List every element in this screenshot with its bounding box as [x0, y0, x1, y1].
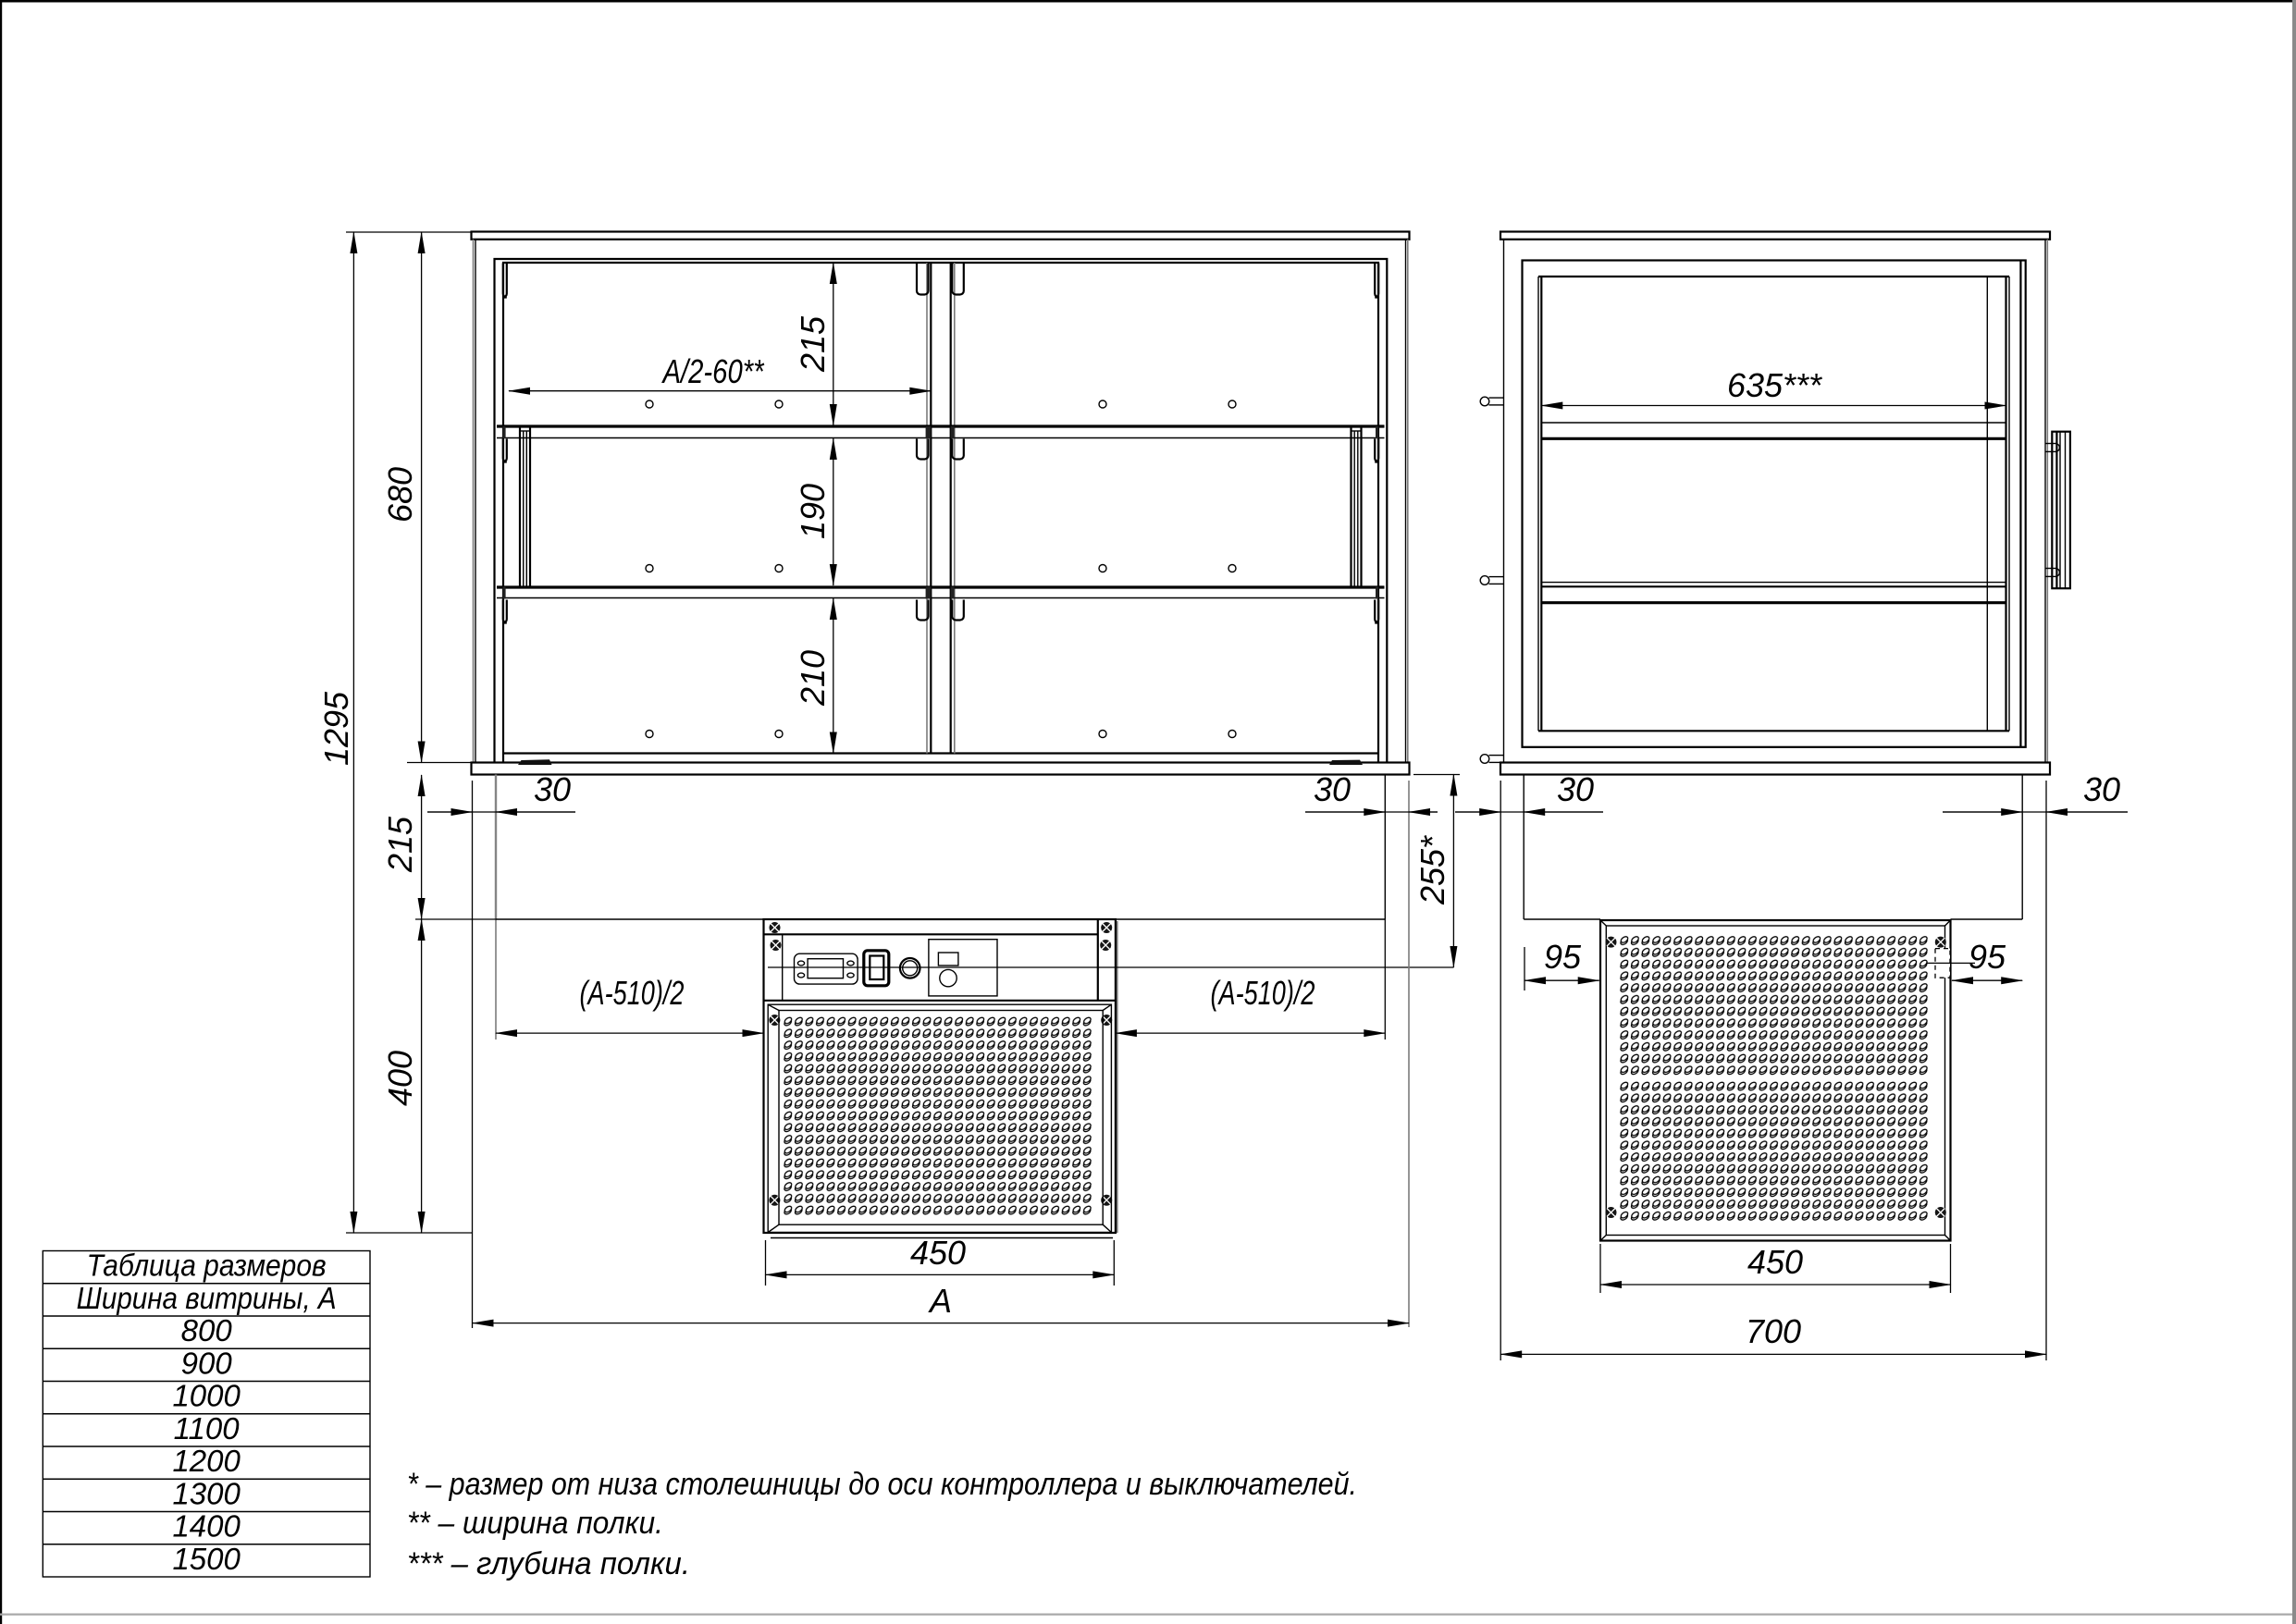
svg-text:450: 450 [910, 1234, 966, 1272]
svg-text:1200: 1200 [172, 1444, 241, 1478]
svg-text:30: 30 [1557, 770, 1594, 808]
svg-text:30: 30 [534, 770, 571, 808]
svg-text:190: 190 [794, 484, 832, 539]
svg-text:1000: 1000 [172, 1379, 241, 1413]
svg-text:1300: 1300 [172, 1476, 241, 1510]
svg-text:30: 30 [1314, 770, 1351, 808]
svg-text:A: A [928, 1282, 952, 1320]
svg-text:800: 800 [181, 1313, 233, 1347]
svg-text:A/2-60**: A/2-60** [661, 352, 764, 390]
svg-text:900: 900 [181, 1346, 233, 1380]
svg-text:1100: 1100 [174, 1411, 241, 1446]
svg-text:95: 95 [1969, 938, 2006, 976]
svg-text:210: 210 [794, 650, 832, 707]
svg-text:(A-510)/2: (A-510)/2 [580, 974, 685, 1012]
svg-text:Таблица размеров: Таблица размеров [87, 1249, 327, 1283]
svg-text:Ширина витрины, А: Ширина витрины, А [77, 1281, 337, 1315]
svg-text:400: 400 [381, 1051, 419, 1106]
svg-text:* – размер от низа столешницы: * – размер от низа столешницы до оси кон… [407, 1467, 1357, 1502]
svg-text:700: 700 [1746, 1312, 1801, 1350]
svg-text:635***: 635*** [1727, 366, 1822, 404]
svg-text:30: 30 [2083, 770, 2120, 808]
svg-text:1400: 1400 [172, 1509, 241, 1544]
svg-text:215: 215 [794, 315, 832, 373]
svg-text:95: 95 [1544, 938, 1582, 976]
svg-text:** – ширина полки.: ** – ширина полки. [407, 1506, 663, 1541]
svg-text:1500: 1500 [172, 1542, 241, 1576]
svg-text:(A-510)/2: (A-510)/2 [1211, 974, 1315, 1012]
svg-text:*** – глубина полки.: *** – глубина полки. [407, 1546, 690, 1581]
svg-text:1295: 1295 [317, 691, 355, 766]
svg-text:680: 680 [381, 467, 419, 523]
svg-text:450: 450 [1747, 1243, 1803, 1281]
svg-text:215: 215 [381, 816, 419, 873]
svg-text:255*: 255* [1413, 835, 1451, 905]
